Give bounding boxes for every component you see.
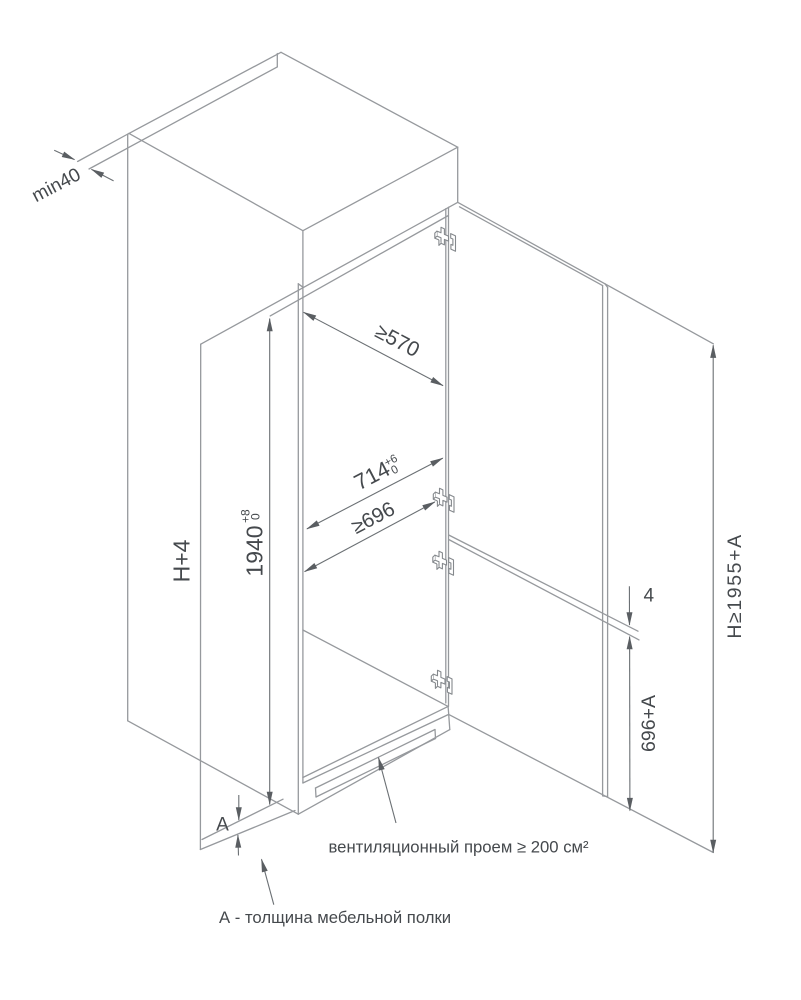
svg-text:1940: 1940 [242, 525, 268, 576]
svg-text:А - толщина мебельной полки: А - толщина мебельной полки [219, 908, 451, 927]
svg-text:H+4: H+4 [169, 539, 195, 582]
svg-text:≥570: ≥570 [371, 320, 423, 362]
svg-text:вентиляционный проем ≥ 200 см²: вентиляционный проем ≥ 200 см² [329, 838, 590, 857]
svg-text:H≥1955+A: H≥1955+A [724, 533, 746, 638]
svg-text:min40: min40 [29, 164, 85, 207]
svg-text:696+A: 696+A [638, 695, 660, 752]
svg-text:A: A [216, 815, 229, 836]
svg-text:4: 4 [644, 586, 655, 607]
svg-text:0: 0 [249, 513, 263, 520]
